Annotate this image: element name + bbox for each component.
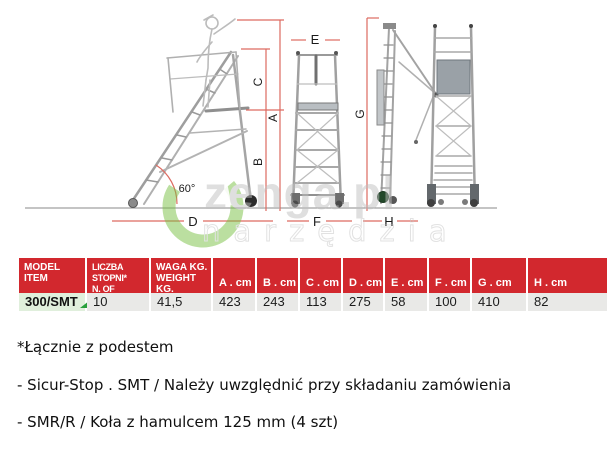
ladder-technical-drawing: C B A G D E F H 60° zenga.pl narzędzia <box>0 0 612 252</box>
dim-label-b: B <box>251 158 265 166</box>
front-wheel <box>129 199 138 208</box>
cell-e: 58 <box>385 293 429 311</box>
cell-a: 423 <box>213 293 257 311</box>
catalog-page: C B A G D E F H 60° zenga.pl narzędzia M… <box>0 0 612 450</box>
watermark: zenga.pl narzędzia <box>155 159 460 252</box>
col-header-d: D . cm <box>343 258 385 293</box>
spec-table: MODEL ITEM LICZBA STOPNI* N. OF RUNGS* W… <box>19 258 607 311</box>
col-header-weight: WAGA KG. WEIGHT KG. <box>151 258 213 293</box>
watermark-subtext: narzędzia <box>202 214 460 248</box>
cell-model: 300/SMT <box>19 293 87 311</box>
col-header-h: H . cm <box>528 258 607 293</box>
ladder-folded-front-view <box>427 24 479 207</box>
table-data-row: 300/SMT 10 41,5 423 243 113 275 58 100 4… <box>19 293 607 311</box>
angle-label: 60° <box>179 183 196 195</box>
col-header-f: F . cm <box>429 258 472 293</box>
table-header-row: MODEL ITEM LICZBA STOPNI* N. OF RUNGS* W… <box>19 258 607 293</box>
dim-label-g: G <box>353 109 367 118</box>
cell-f: 100 <box>429 293 472 311</box>
cell-rungs: 10 <box>87 293 151 311</box>
col-header-e: E . cm <box>385 258 429 293</box>
cell-h: 82 <box>528 293 607 311</box>
col-header-model: MODEL ITEM <box>19 258 87 293</box>
col-header-b: B . cm <box>257 258 300 293</box>
watermark-text: zenga.pl <box>204 167 396 219</box>
dim-label-c: C <box>251 77 265 86</box>
footnote-sicur-stop: - Sicur-Stop . SMT / Należy uwzględnić p… <box>17 376 511 394</box>
footnote-platform: *Łącznie z podestem <box>17 338 174 356</box>
cell-weight: 41,5 <box>151 293 213 311</box>
platform-panel <box>437 60 470 94</box>
dim-label-a: A <box>266 114 280 122</box>
dim-label-e: E <box>311 32 320 47</box>
cell-b: 243 <box>257 293 300 311</box>
col-header-c: C . cm <box>300 258 343 293</box>
col-header-rungs: LICZBA STOPNI* N. OF RUNGS* <box>87 258 151 293</box>
col-header-g: G . cm <box>472 258 528 293</box>
footnote-wheels: - SMR/R / Koła z hamulcem 125 mm (4 szt) <box>17 413 338 431</box>
cell-c: 113 <box>300 293 343 311</box>
dim-label-d: D <box>188 214 197 229</box>
col-header-a: A . cm <box>213 258 257 293</box>
cell-g: 410 <box>472 293 528 311</box>
cell-d: 275 <box>343 293 385 311</box>
